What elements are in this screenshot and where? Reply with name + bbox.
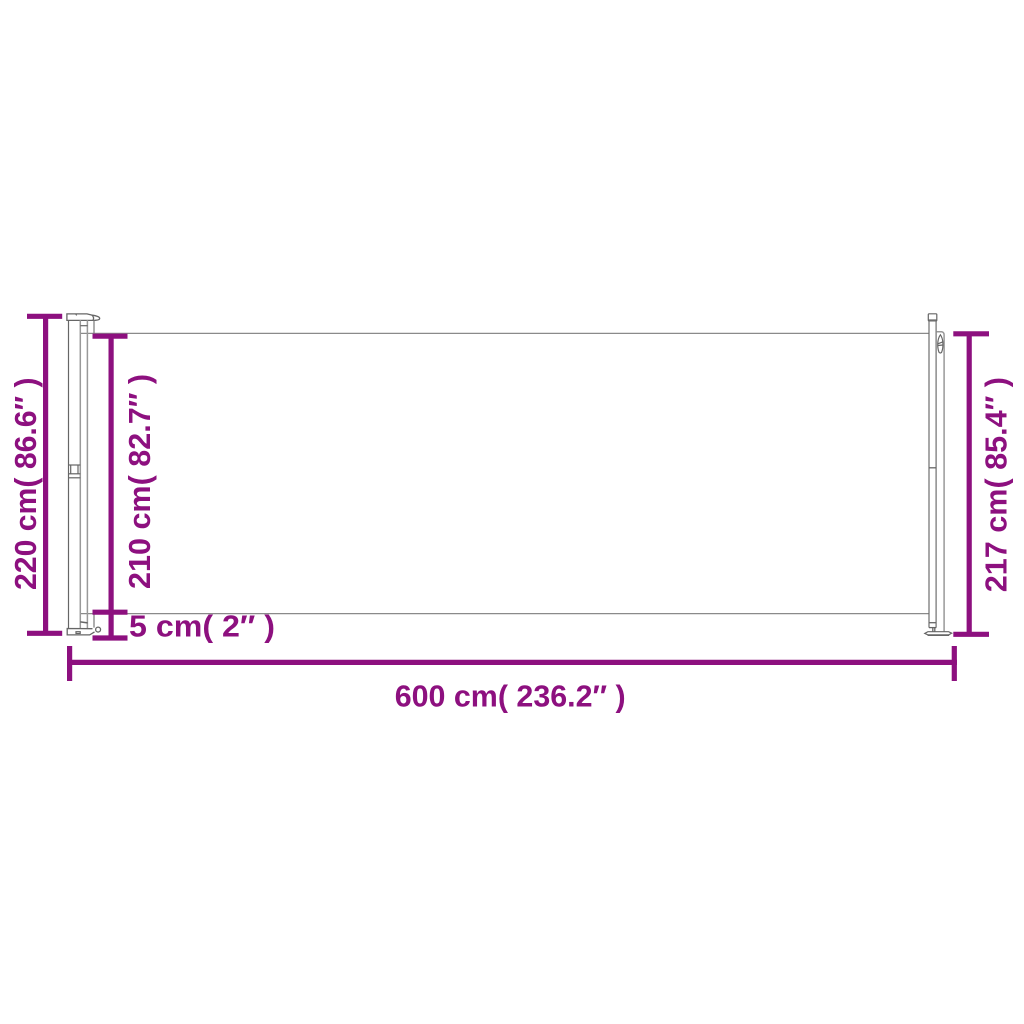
- svg-text:220 cm( 86.6″ ): 220 cm( 86.6″ ): [8, 378, 43, 591]
- svg-text:210 cm( 82.7″ ): 210 cm( 82.7″ ): [122, 374, 157, 589]
- svg-text:5 cm( 2″ ): 5 cm( 2″ ): [129, 609, 275, 644]
- svg-text:217 cm( 85.4″ ): 217 cm( 85.4″ ): [978, 377, 1013, 592]
- svg-text:600 cm( 236.2″ ): 600 cm( 236.2″ ): [395, 678, 626, 713]
